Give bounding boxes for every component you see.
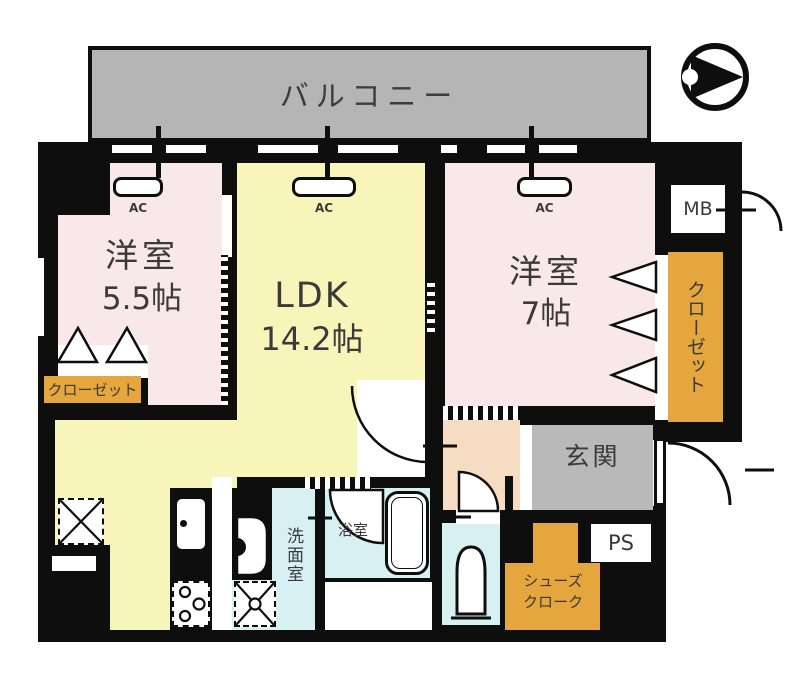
bathroom-label-box: 浴室 xyxy=(326,520,380,538)
floor-plan: バルコニー クローゼット クローゼット MB PS 玄関 シューズ xyxy=(0,0,806,692)
stove-burners-icon xyxy=(180,587,205,621)
entrance-door-icon xyxy=(668,443,730,505)
ldk-hall-door-icon xyxy=(352,385,427,462)
closet-left-door-icon xyxy=(58,328,146,362)
refrigerator-x-icon xyxy=(60,500,102,543)
bathroom-label: 浴室 xyxy=(338,519,368,540)
washer-icon xyxy=(236,583,274,625)
closet-right-door-icon xyxy=(612,262,656,392)
plan-overlay xyxy=(0,0,806,692)
door-hinge-ticks xyxy=(308,210,774,530)
toilet-door-icon xyxy=(459,472,498,511)
toilet-bowl-icon xyxy=(451,547,491,618)
washbasin-icon xyxy=(237,517,267,575)
compass-icon xyxy=(682,46,746,108)
